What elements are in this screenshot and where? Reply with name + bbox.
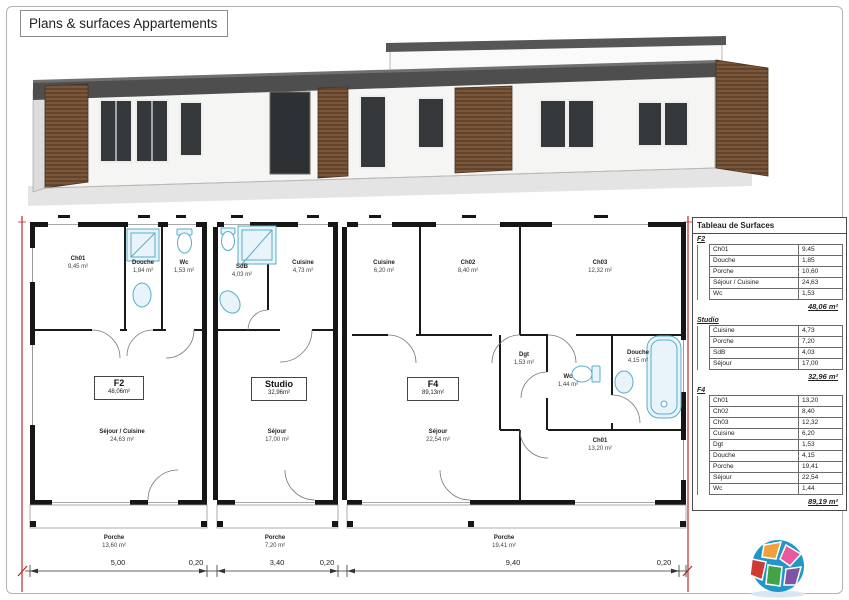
dimension-label: 5,00 [98,558,138,567]
wood-slat-panel [45,84,88,188]
room-label-f4-porche: Porche 19,41 m² [464,535,544,551]
wood-slat-panel [455,86,512,173]
dimension-label: 0,20 [176,558,216,567]
room-label-f4-cuisine: Cuisine 6,20 m² [344,260,424,276]
surface-table-section-f2: F2 Ch019,45 Douche1,85 Porche10,60 Séjou… [693,234,846,315]
room-label-f4-douche: Douche 4,15 m² [598,350,678,366]
drawing-sheet: Plans & surfaces Appartements [0,0,849,600]
surface-table-title: Tableau de Surfaces [693,218,846,234]
porch-slabs [30,505,686,528]
table-row: Séjour22,54 [710,473,842,484]
table-row: Ch028,40 [710,407,842,418]
room-label-f2-porche: Porche 13,60 m² [74,535,154,551]
apartment-label-f2: F2 48,06m² [94,376,144,400]
wood-slat-panel [318,87,348,178]
section-total: 32,96 m² [693,370,846,384]
page-title: Plans & surfaces Appartements [20,10,228,37]
table-row: Porche19,41 [710,462,842,473]
building-elevation [28,36,768,206]
surface-table-section-studio: Studio Cuisine4,73 Porche7,20 SdB4,03 Sé… [693,315,846,385]
table-row: Porche10,60 [710,267,842,278]
table-row: Ch0312,32 [710,418,842,429]
table-row: Wc1,44 [710,484,842,495]
dimension-label: 9,40 [493,558,533,567]
table-row: Porche7,20 [710,337,842,348]
table-row: Wc1,53 [710,289,842,300]
dimension-label: 0,20 [644,558,684,567]
surface-table-section-f4: F4 Ch0113,20 Ch028,40 Ch0312,32 Cuisine6… [693,385,846,510]
table-row: Séjour17,00 [710,359,842,370]
dimension-label: 0,20 [307,558,347,567]
sink-icon [615,371,633,393]
table-row: Dgt1,53 [710,440,842,451]
room-label-f2-sejour: Séjour / Cuisine 24,63 m² [82,429,162,445]
door [360,96,386,168]
sink-icon [216,287,245,317]
window [180,102,202,156]
apartment-label-studio: Studio 32,96m² [251,377,307,401]
room-label-f4-ch03: Ch03 12,32 m² [560,260,640,276]
table-row: Cuisine6,20 [710,429,842,440]
table-row: Douche1,85 [710,256,842,267]
apartment-label-f4: F4 89,13m² [407,377,459,401]
table-row: Ch019,45 [710,245,842,256]
window [638,102,662,146]
agency-logo [740,537,820,599]
room-label-studio-sejour: Séjour 17,00 m² [237,429,317,445]
table-row: Ch0113,20 [710,396,842,407]
room-label-f4-wc: Wc 1,44 m² [528,374,608,390]
room-label-f4-dgt: Dgt 1,53 m² [484,352,564,368]
entrance-recess [270,92,310,174]
section-total: 89,19 m² [693,495,846,509]
porch-columns [30,521,686,527]
room-label-studio-porche: Porche 7,20 m² [235,535,315,551]
surface-table: Tableau de Surfaces F2 Ch019,45 Douche1,… [692,217,847,511]
table-row: Cuisine4,73 [710,326,842,337]
door-swing-arcs [92,310,640,500]
window [664,102,688,146]
room-label-f4-ch01: Ch01 13,20 m² [560,438,640,454]
dimension-label: 3,40 [257,558,297,567]
window-head-marks [58,215,608,218]
wood-slat-panel [716,60,768,176]
room-label-f4-sejour: Séjour 22,54 m² [398,429,478,445]
window [540,100,566,148]
table-row: SdB4,03 [710,348,842,359]
room-label-studio-cuisine: Cuisine 4,73 m² [263,260,343,276]
sink-icon [133,283,151,307]
section-total: 48,06 m² [693,300,846,314]
room-label-f4-ch02: Ch02 8,40 m² [428,260,508,276]
window [418,98,444,148]
window [568,100,594,148]
table-row: Séjour / Cuisine24,63 [710,278,842,289]
table-row: Douche4,15 [710,451,842,462]
